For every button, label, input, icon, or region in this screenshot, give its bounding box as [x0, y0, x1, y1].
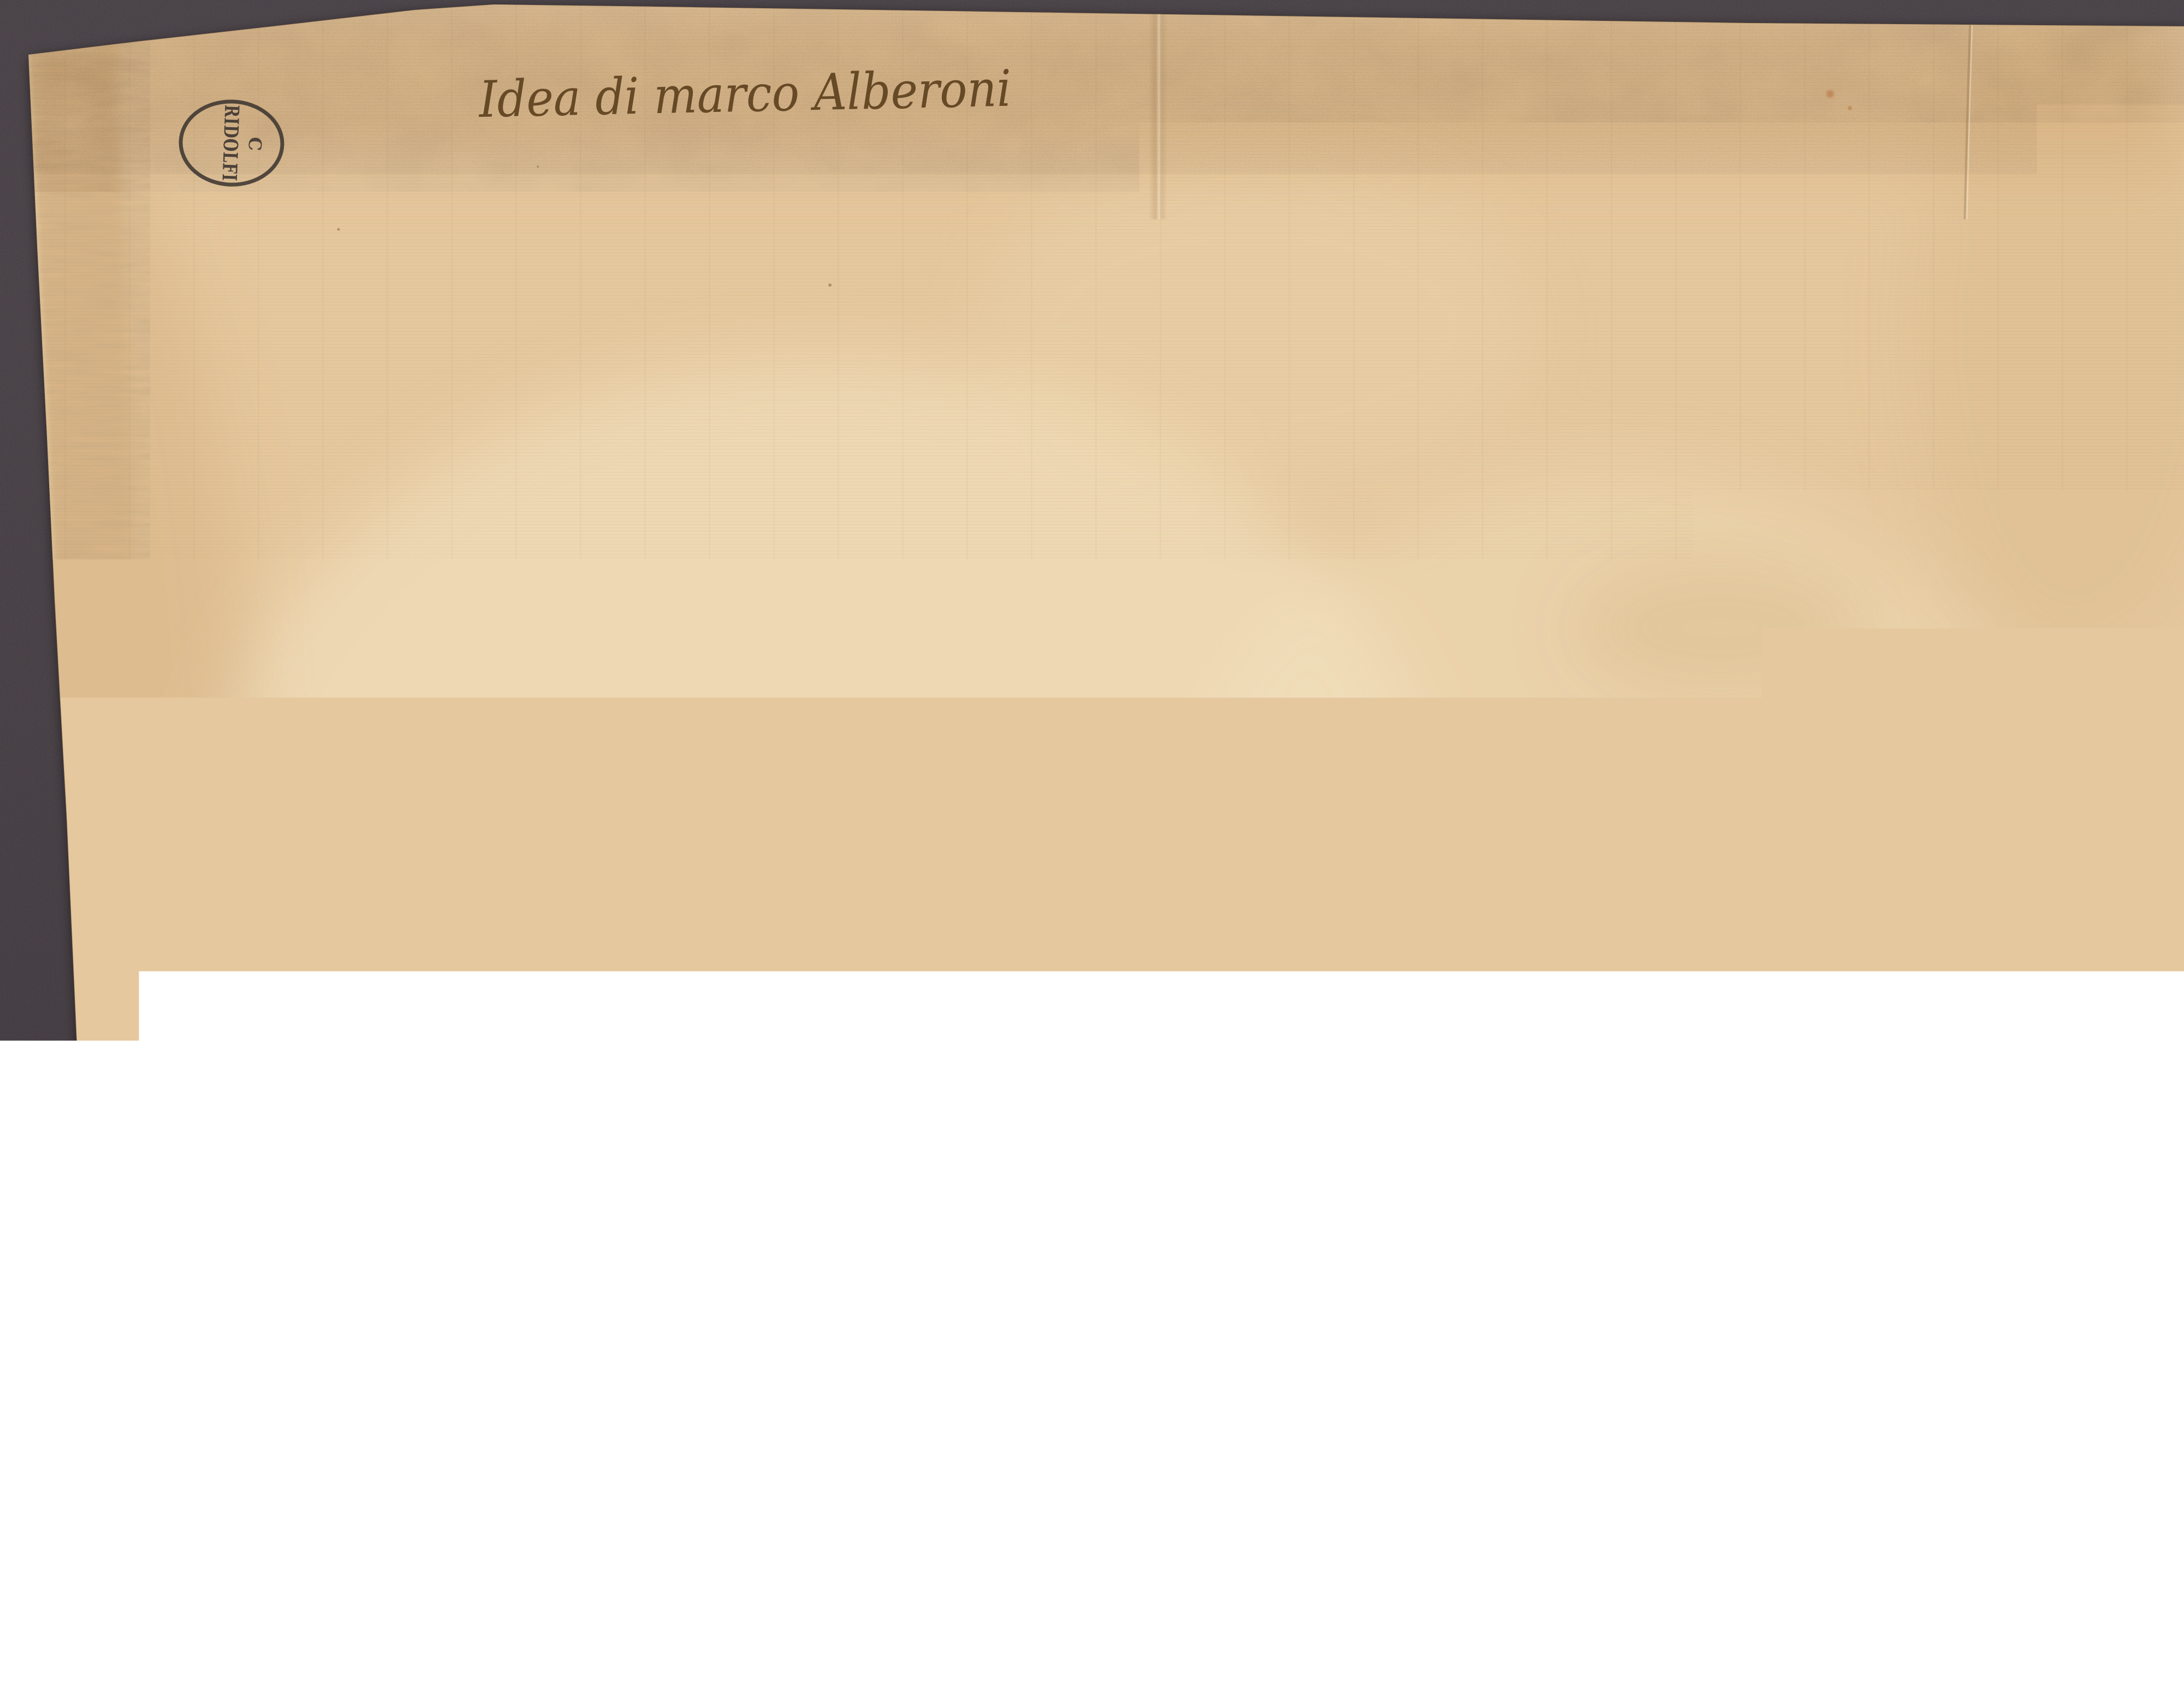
grille-bar [429, 593, 430, 1248]
capital-ink-blob [317, 1388, 323, 1393]
scanned-drawing-verso: RIDOLFI C Idea di marco Alberoni [0, 0, 2184, 1705]
grille-bar [268, 595, 268, 1085]
center-fold-stain [1159, 1475, 1160, 1633]
center-fold-crease [1149, 11, 1167, 1655]
grille-bar [236, 593, 237, 1104]
grille-bar [584, 595, 585, 1091]
left-edge-vertical [136, 595, 138, 1666]
grille-bar [299, 593, 300, 1069]
grille-bar [394, 594, 395, 1075]
grille-bar [521, 595, 521, 1099]
grille-bar [173, 593, 174, 1092]
ink-inscription: Idea di marco Alberoni [477, 60, 1012, 129]
grille-bar [489, 594, 490, 1072]
blue-pencil-line [287, 1384, 288, 1514]
cornice-double-line-bottom [136, 1208, 377, 1209]
stamp-word: RIDOLFI [218, 104, 244, 181]
stamp-initial: C [245, 137, 266, 151]
cornice-companion-vertical [375, 1051, 375, 1200]
grille-bar [644, 593, 645, 1081]
grille-bar [363, 593, 364, 1199]
grille-bar [458, 595, 458, 1087]
paper-grain-texture [0, 0, 2184, 1705]
